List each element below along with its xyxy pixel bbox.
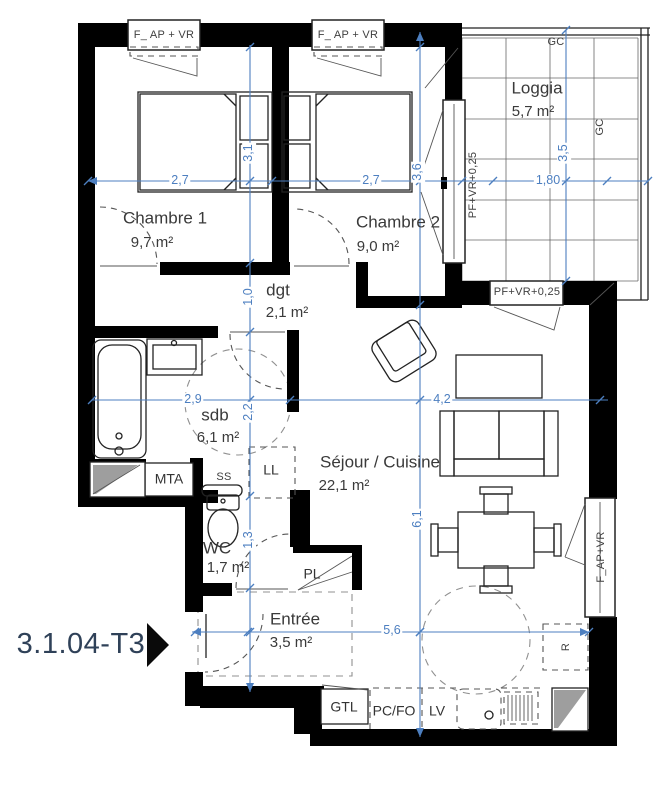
dim-chambre2-height: 3,6	[411, 161, 425, 182]
room-label-chambre2-area: 9,0 m²	[357, 239, 400, 256]
room-label-dgt-area: 2,1 m²	[266, 305, 309, 322]
pl-label: PL	[303, 566, 320, 581]
room-label-chambre2-name: Chambre 2	[356, 214, 440, 233]
dim-chambre2-width: 2,7	[360, 174, 381, 188]
duct-sdb	[90, 462, 145, 497]
room-label-entree-area: 3,5 m²	[270, 635, 313, 652]
gtl-label: GTL	[330, 699, 357, 714]
bathroom-sink	[147, 339, 202, 375]
window-label-sejour-right: F_AP+VR	[595, 531, 607, 582]
pcfo-label: PC/FO	[373, 703, 416, 718]
room-label-chambre1-name: Chambre 1	[123, 210, 207, 229]
dim-loggia-height: 3,5	[557, 142, 571, 163]
dish-drainer	[504, 692, 538, 724]
dim-bottom-width: 5,6	[381, 624, 402, 638]
gc-label-right: GC	[594, 118, 606, 135]
dim-chambre1-height: 3,1	[242, 142, 256, 163]
sejour-turning-circle	[422, 586, 530, 694]
mta-label: MTA	[155, 471, 184, 486]
gc-label-top: GC	[547, 36, 564, 48]
dining-table-and-chairs	[431, 487, 561, 593]
unit-pointer-triangle	[147, 623, 169, 667]
bed-chambre-2	[282, 92, 412, 192]
dim-loggia-width: 1,80	[534, 174, 562, 188]
window-label-chambre1: F_ AP + VR	[134, 29, 195, 41]
fridge-label: R	[560, 643, 572, 651]
window-label-chambre2: F_ AP + VR	[318, 29, 379, 41]
room-label-dgt-name: dgt	[266, 282, 290, 301]
room-label-loggia-area: 5,7 m²	[512, 104, 555, 121]
room-label-chambre1-area: 9,7 m²	[131, 235, 174, 252]
kitchen-faucet	[485, 711, 493, 719]
dim-wc-height: 1,3	[242, 529, 256, 550]
unit-label: 3.1.04-T3	[17, 629, 146, 661]
window-label-sejour-loggia: PF+VR+0,25	[494, 286, 561, 298]
bathtub	[93, 340, 146, 458]
dimension-lines	[84, 26, 652, 737]
door-swing-entry	[205, 614, 263, 672]
room-label-sdb-area: 6,1 m²	[197, 430, 240, 447]
door-swing-sdb	[230, 334, 285, 389]
floor-plan-drawing	[0, 0, 666, 800]
armchair	[369, 317, 439, 385]
room-label-wc-name: WC	[203, 540, 231, 559]
dim-chambre1-width: 2,7	[169, 174, 190, 188]
room-label-sejour-name: Séjour / Cuisine	[320, 454, 440, 473]
loggia-railing	[455, 28, 650, 300]
dim-sdb-height: 2,2	[242, 401, 256, 422]
dim-sejour-height: 6,1	[411, 508, 425, 529]
lv-label: LV	[429, 703, 445, 718]
room-label-loggia-name: Loggia	[511, 80, 562, 99]
coffee-table	[456, 355, 542, 398]
ll-label: LL	[263, 462, 279, 477]
door-swing-chambre2	[294, 209, 349, 264]
sofa	[440, 411, 558, 476]
room-label-sdb-name: sdb	[201, 407, 228, 426]
room-label-entree-name: Entrée	[270, 611, 320, 630]
ss-label: SS	[216, 471, 231, 483]
window-label-chambre2-loggia: PF+VR+0,25	[467, 152, 479, 219]
duct-kitchen	[552, 688, 588, 731]
floor-plan: Chambre 1 9,7 m² Chambre 2 9,0 m² Loggia…	[0, 0, 666, 800]
kitchen-sink	[457, 689, 501, 729]
dim-dgt-height: 1,0	[242, 286, 256, 307]
loggia-floor	[462, 38, 638, 281]
dim-sejour-width: 4,2	[431, 393, 452, 407]
room-label-wc-area: 1,7 m²	[207, 560, 250, 577]
room-label-sejour-area: 22,1 m²	[319, 478, 370, 495]
dim-sdb-width: 2,9	[182, 393, 203, 407]
